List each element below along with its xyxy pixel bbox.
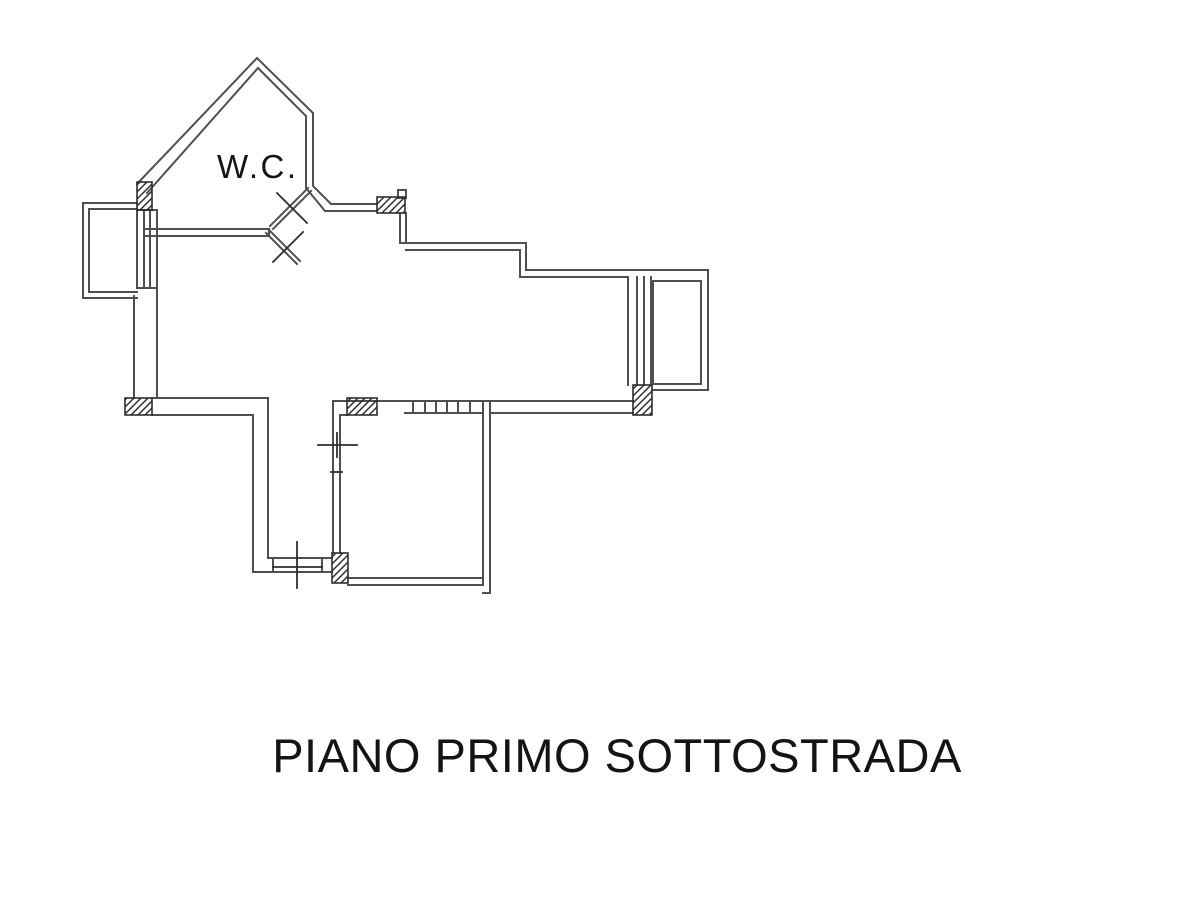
wall-piers [125, 182, 652, 583]
wc-door-leaf-b [269, 230, 300, 261]
wc-door-leaf-a [270, 188, 308, 226]
terrace-inner [653, 281, 701, 384]
pier-corridor [332, 553, 348, 583]
room-label-wc: W.C. [217, 148, 299, 185]
pier-right [633, 385, 652, 415]
wall-linework [83, 58, 708, 593]
wc-door-strike-a [277, 193, 307, 223]
plan-title: PIANO PRIMO SOTTOSTRADA [272, 729, 962, 782]
wc-wall-inner [147, 68, 377, 211]
pier-bottom-left [125, 398, 152, 415]
plan-text: W.C. PIANO PRIMO SOTTOSTRADA [217, 148, 962, 782]
balcony-outer [83, 203, 137, 298]
floor-plan-page: W.C. PIANO PRIMO SOTTOSTRADA [0, 0, 1200, 900]
floor-plan-canvas: W.C. PIANO PRIMO SOTTOSTRADA [0, 0, 1200, 900]
pier-lower-room [347, 398, 377, 415]
wc-door-leaf-b2 [266, 233, 297, 264]
wc-door-strike-b [273, 232, 303, 262]
balcony-inner [89, 209, 137, 292]
wc-door-leaf-a2 [273, 191, 311, 229]
pier-top-middle [377, 197, 405, 213]
pier-top-left [137, 182, 152, 210]
